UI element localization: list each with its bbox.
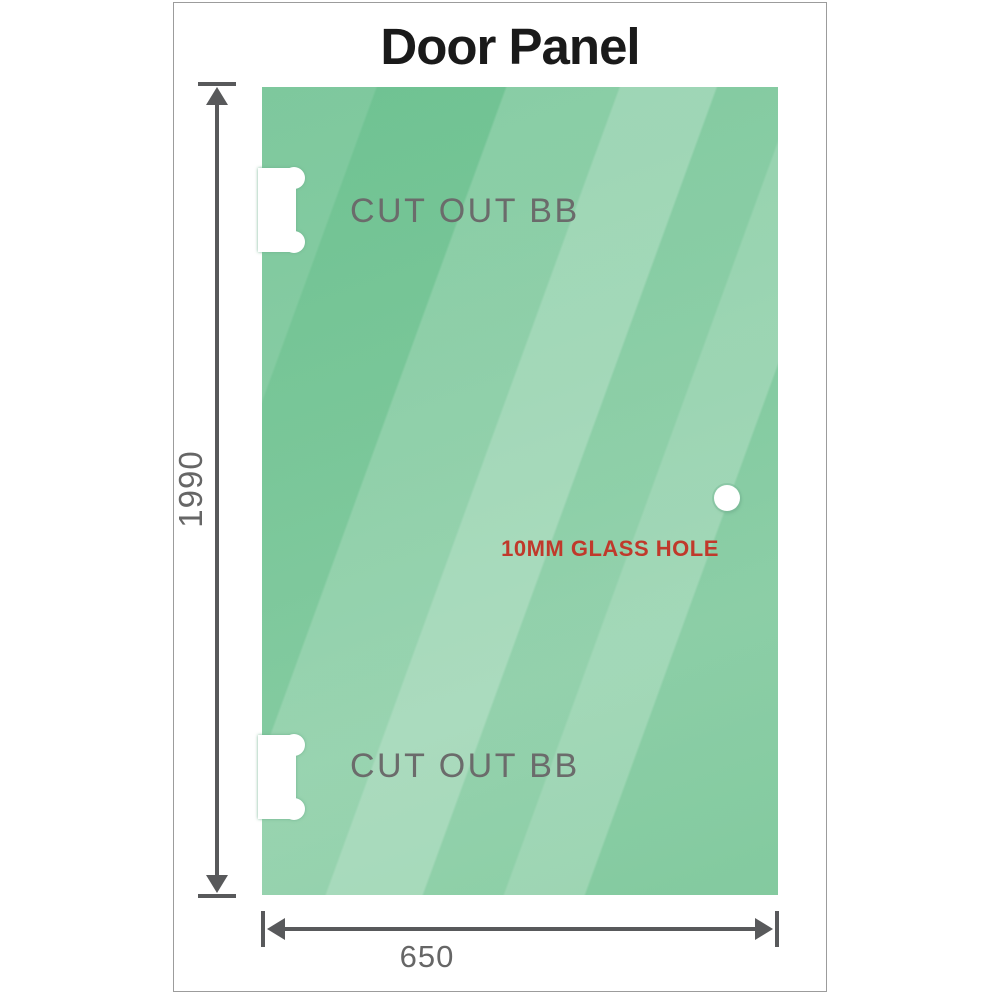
- glass-hole: [714, 485, 740, 511]
- height-dimension-cap-top: [198, 82, 236, 86]
- hinge-cutout-bottom-icon: [258, 729, 308, 825]
- cutout-label-bottom: CUT OUT BB: [350, 747, 580, 786]
- width-dimension-tick-left: [261, 911, 265, 947]
- door-panel-diagram: Door Panel CUT OUT BB CUT OUT BB 10MM GL…: [0, 0, 1000, 1000]
- glass-hole-label: 10MM GLASS HOLE: [501, 536, 719, 562]
- width-dimension-label: 650: [400, 939, 455, 975]
- arrow-right-icon: [755, 918, 773, 940]
- height-dimension-label: 1990: [172, 450, 210, 527]
- cutout-label-top: CUT OUT BB: [350, 192, 580, 231]
- page-title: Door Panel: [380, 17, 639, 76]
- height-dimension-line: [215, 95, 219, 885]
- hinge-cutout-top-icon: [258, 162, 308, 258]
- arrow-down-icon: [206, 875, 228, 893]
- height-dimension-cap-bottom: [198, 894, 236, 898]
- width-dimension-tick-right: [775, 911, 779, 947]
- width-dimension-line: [280, 927, 760, 931]
